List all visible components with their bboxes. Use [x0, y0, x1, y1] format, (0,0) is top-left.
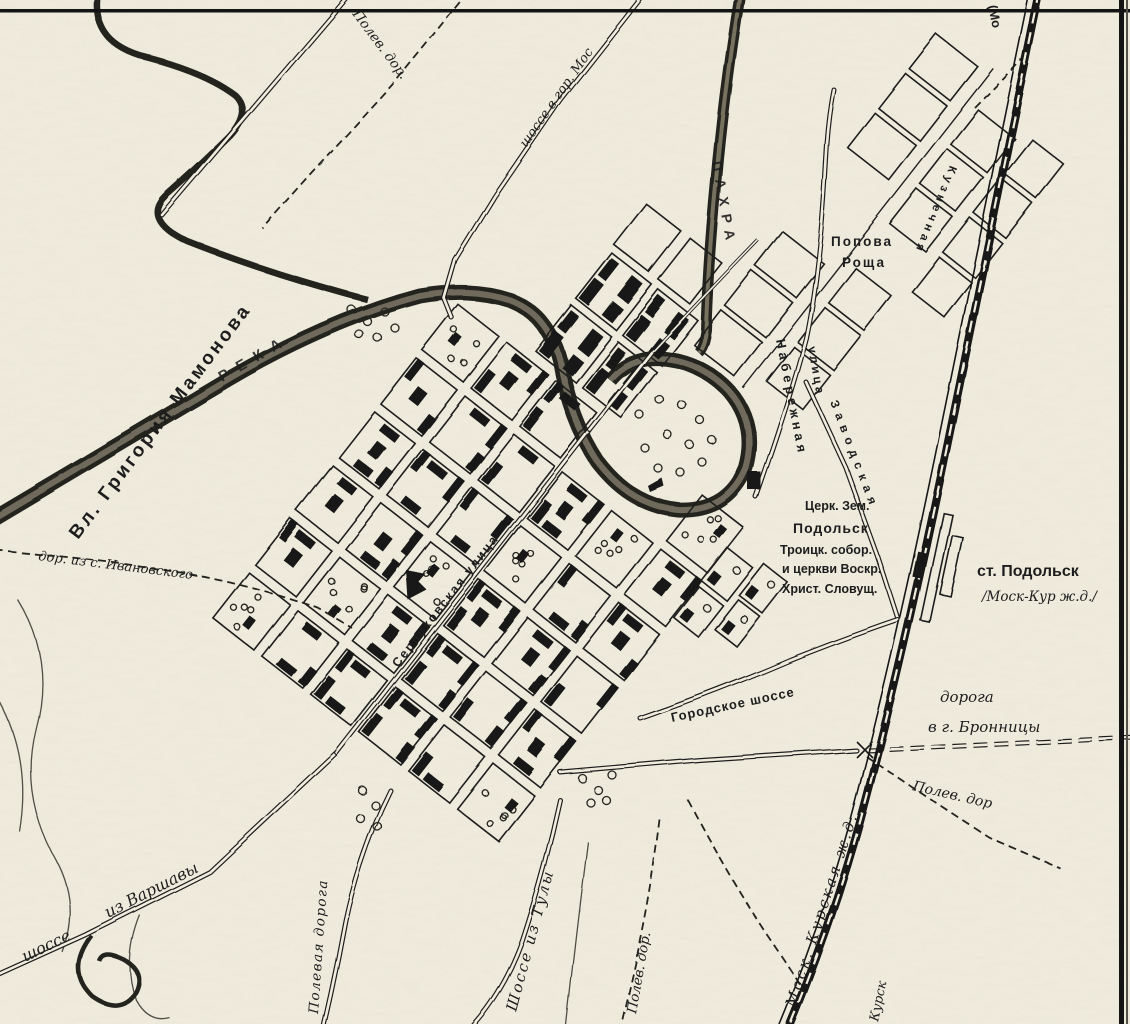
label-station-podolsk: ст. Подольск	[977, 563, 1080, 580]
label-bronnitsy-road-1: дорога	[940, 688, 994, 706]
label-trinity-cathedral-3: Христ. Словущ.	[782, 582, 877, 596]
frame-right-edge	[1126, 0, 1128, 1024]
frame-top-border	[0, 9, 1130, 13]
scanned-map-page: Вл. Григория Мамонова РЕКА ПАХРА Попова …	[0, 0, 1130, 1024]
label-popova-roshcha-2: Роща	[842, 255, 886, 270]
podolsk-city-plan: Вл. Григория Мамонова РЕКА ПАХРА Попова …	[0, 0, 1130, 1024]
label-church-land: Церк. Зем.	[805, 499, 869, 513]
label-podolsk: Подольск	[793, 520, 869, 536]
label-bronnitsy-road-2: в г. Бронницы	[928, 718, 1040, 736]
label-trinity-cathedral-1: Троицк. собор.	[780, 543, 872, 557]
label-trinity-cathedral-2: и церкви Воскр.	[782, 562, 881, 576]
label-popova-roshcha-1: Попова	[831, 234, 893, 249]
frame-right-border	[1119, 0, 1124, 1024]
label-station-railway: /Моск-Кур ж.д./	[980, 589, 1098, 605]
